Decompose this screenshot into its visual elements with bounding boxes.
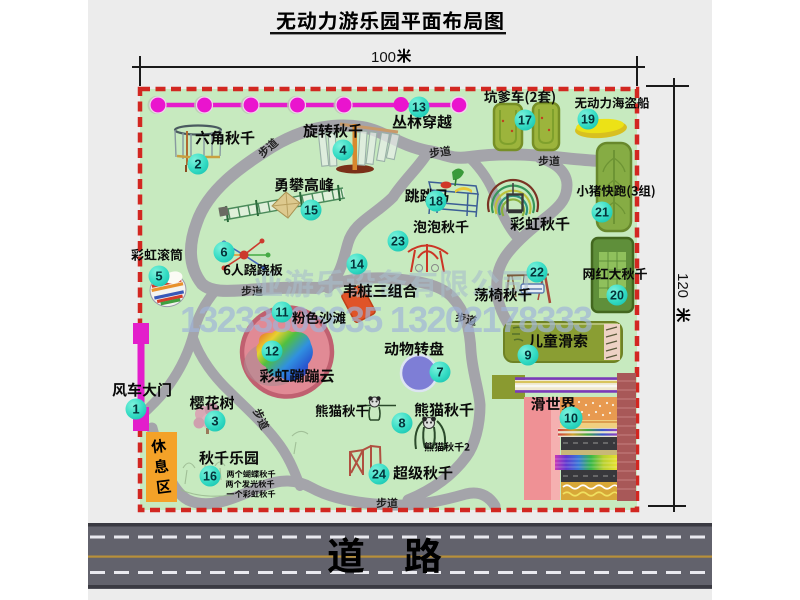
svg-text:5: 5	[155, 269, 162, 284]
svg-text:2: 2	[194, 157, 201, 172]
svg-text:1: 1	[132, 402, 139, 417]
svg-text:15: 15	[304, 204, 318, 218]
svg-text:10: 10	[564, 412, 578, 426]
svg-text:3: 3	[211, 414, 218, 429]
svg-text:17: 17	[518, 114, 532, 128]
svg-text:19: 19	[581, 113, 595, 127]
svg-text:23: 23	[391, 235, 405, 249]
svg-text:14: 14	[350, 258, 364, 272]
svg-text:20: 20	[610, 289, 624, 303]
svg-text:100: 100	[371, 49, 396, 66]
svg-text:13: 13	[412, 101, 426, 115]
svg-text:11: 11	[275, 306, 288, 320]
svg-text:22: 22	[530, 266, 544, 280]
svg-text:18: 18	[429, 195, 443, 209]
svg-text:21: 21	[595, 206, 609, 220]
svg-text:8: 8	[398, 416, 405, 431]
svg-text:13233806635 13202178333: 13233806635 13202178333	[180, 299, 592, 340]
svg-text:12: 12	[265, 345, 279, 359]
svg-text:9: 9	[524, 348, 531, 363]
svg-text:7: 7	[436, 365, 443, 380]
svg-text:6: 6	[220, 245, 227, 260]
svg-text:4: 4	[339, 143, 347, 158]
svg-text:16: 16	[203, 470, 217, 484]
svg-text:24: 24	[372, 468, 386, 482]
svg-text:120: 120	[674, 273, 691, 298]
